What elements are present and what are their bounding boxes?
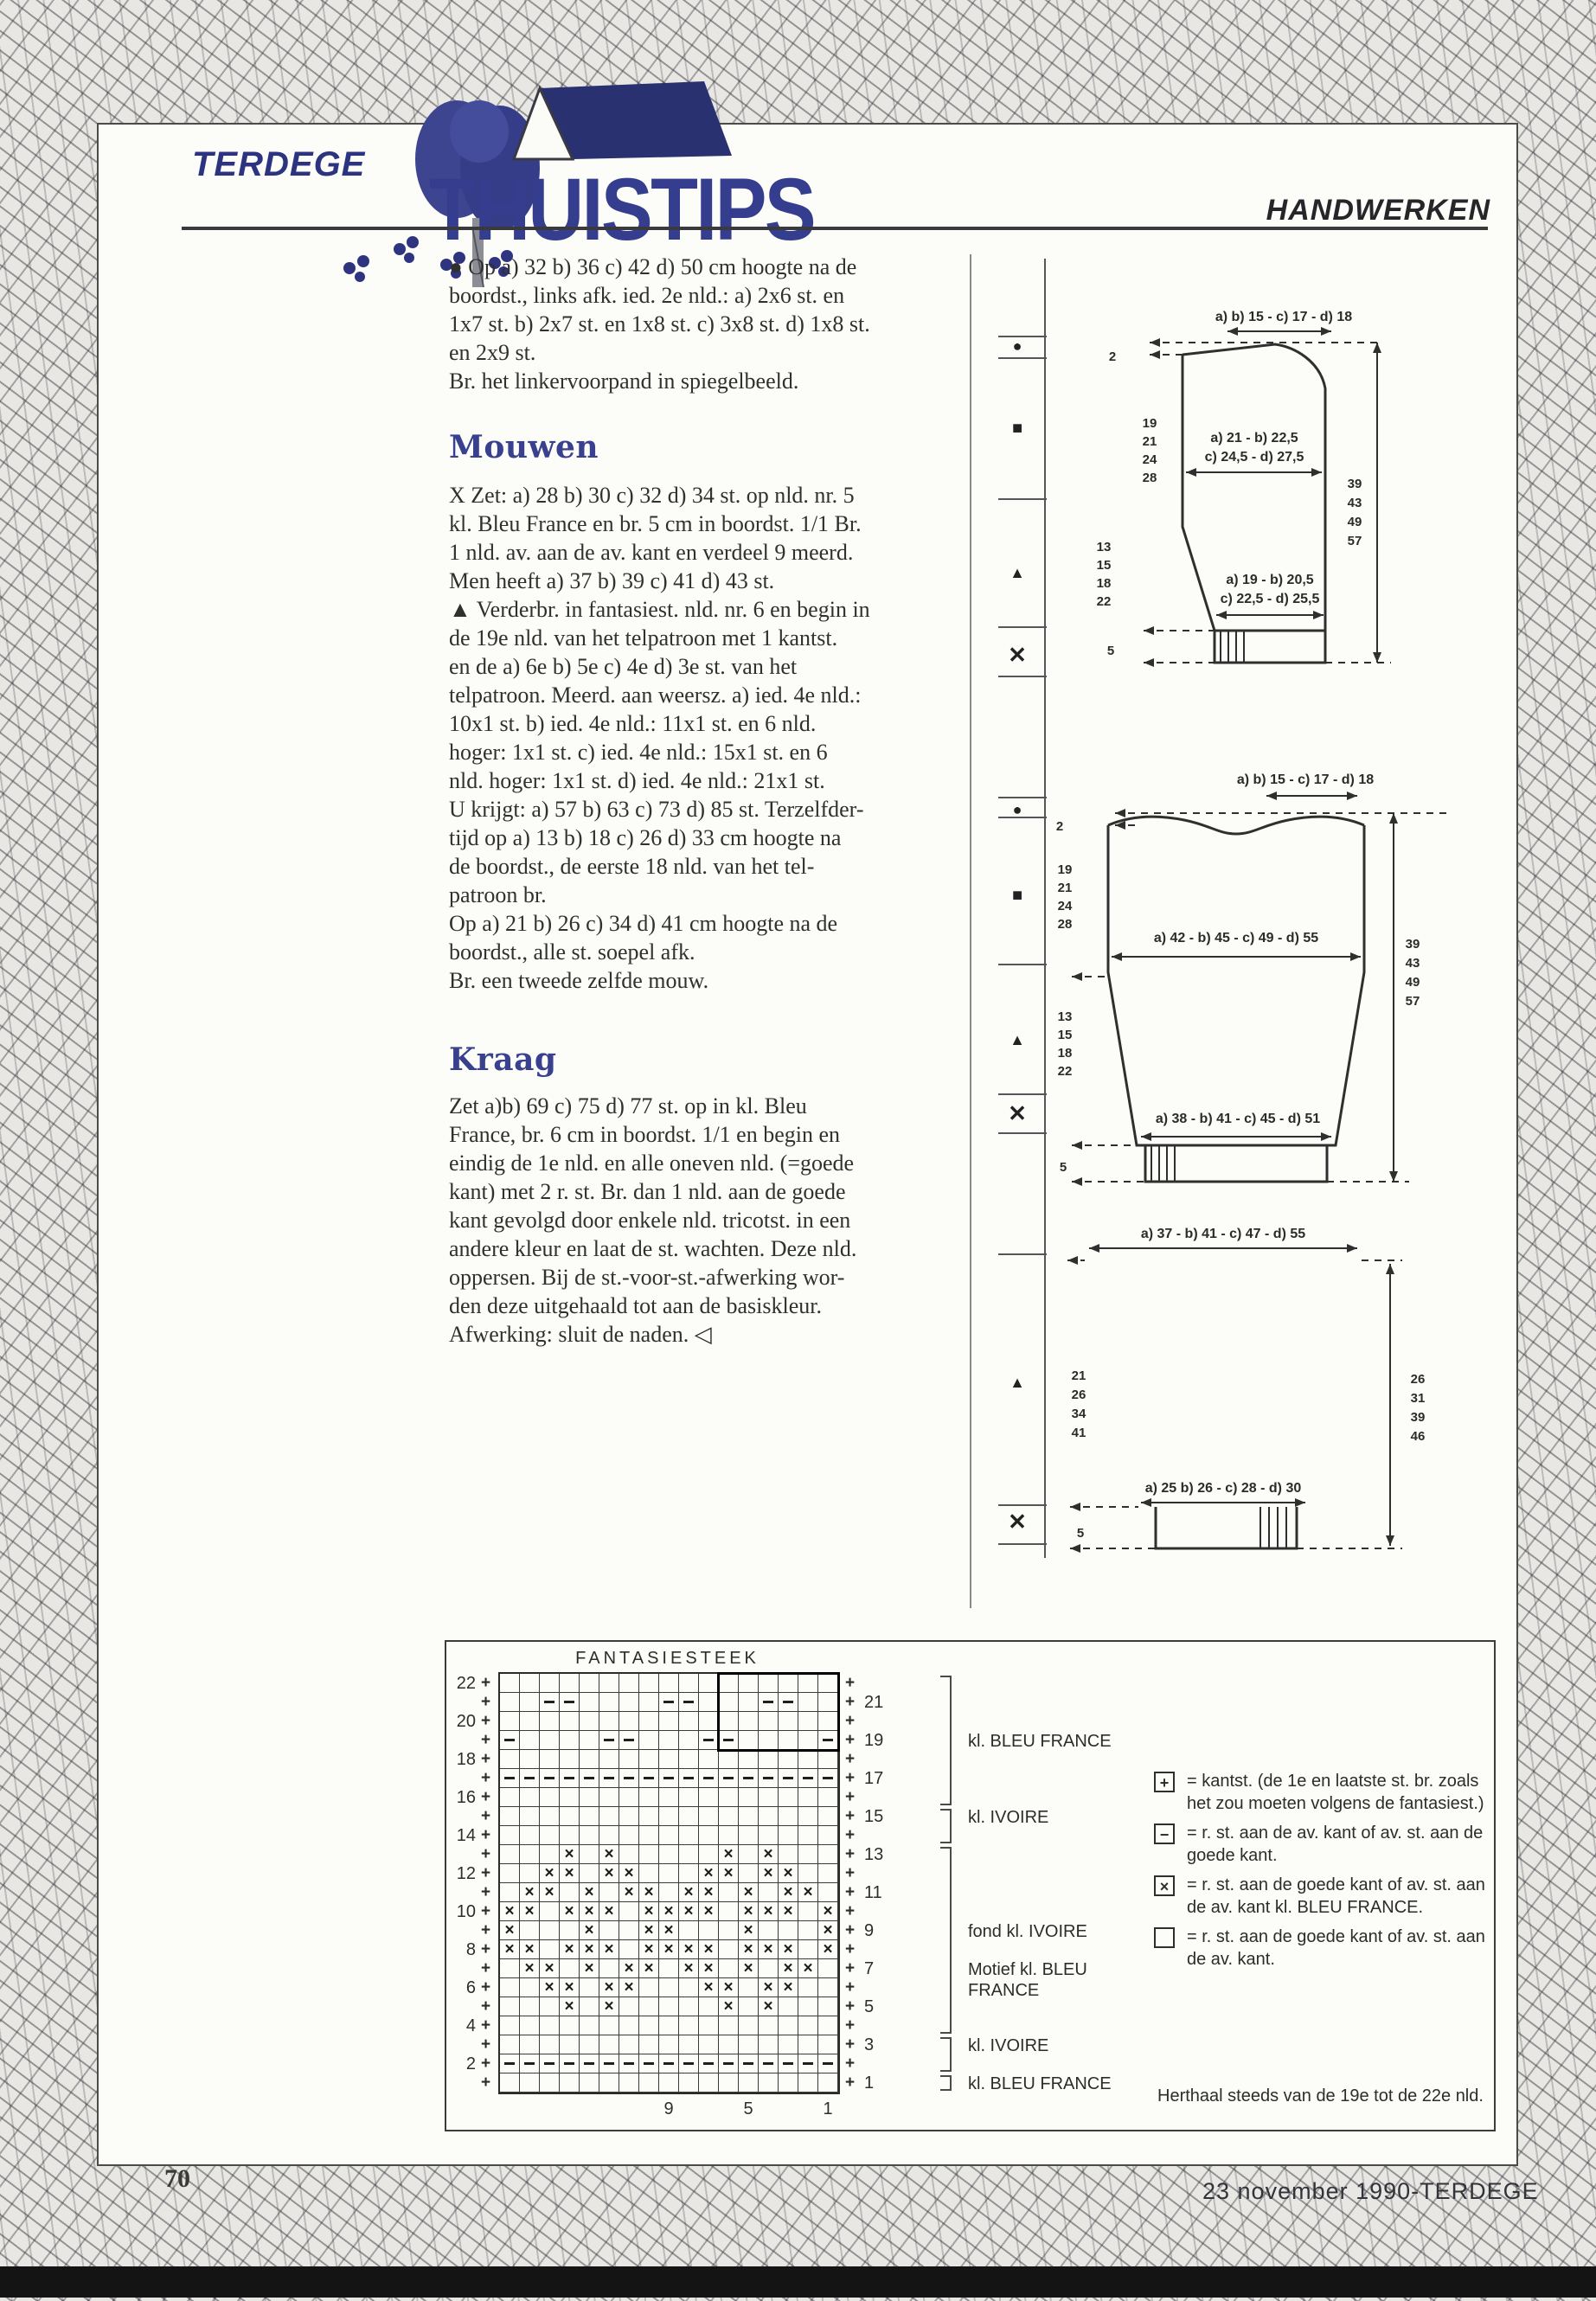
intro-paragraph: ● Op a) 32 b) 36 c) 42 d) 50 cm hoogte n… bbox=[449, 253, 978, 395]
svg-text:46: 46 bbox=[1411, 1429, 1426, 1444]
chart-cell bbox=[759, 1921, 779, 1940]
header-rule bbox=[182, 227, 1488, 230]
chart-cell bbox=[659, 1731, 679, 1750]
svg-text:43: 43 bbox=[1406, 956, 1420, 971]
triangle-icon: ▲ bbox=[1000, 1031, 1035, 1049]
chart-cell bbox=[560, 1731, 580, 1750]
color-label: kl. BLEU FRANCE bbox=[968, 1731, 1112, 1752]
chart-cell bbox=[619, 1826, 639, 1845]
color-range-bracket bbox=[940, 1809, 952, 1843]
svg-text:22: 22 bbox=[1097, 594, 1112, 609]
chart-cell bbox=[679, 1693, 699, 1712]
chart-cell bbox=[659, 1826, 679, 1845]
rib-hatch bbox=[1221, 631, 1244, 663]
triangle-icon: ▲ bbox=[1000, 1374, 1035, 1392]
page-title: THUISTIPS bbox=[429, 159, 814, 260]
chart-cell bbox=[739, 1978, 759, 1997]
body-panel-diagram: a) b) 15 - c) 17 - d) 18 2 19 21 24 28 a… bbox=[1046, 765, 1517, 1223]
chart-cell bbox=[818, 1883, 838, 1902]
chart-cell bbox=[540, 1826, 560, 1845]
chart-cell bbox=[679, 1978, 699, 1997]
chart-cell bbox=[659, 1750, 679, 1769]
chart-cell bbox=[798, 1978, 818, 1997]
chart-cell bbox=[520, 1750, 540, 1769]
chart-cell: × bbox=[599, 1845, 619, 1864]
chart-cell bbox=[540, 1731, 560, 1750]
chart-cell bbox=[580, 1750, 599, 1769]
svg-text:39: 39 bbox=[1348, 477, 1362, 491]
chart-cell bbox=[560, 1826, 580, 1845]
chart-cell: × bbox=[560, 1864, 580, 1883]
chart-cell bbox=[580, 1826, 599, 1845]
chart-cell bbox=[699, 1750, 719, 1769]
stitch-chart-grid: ++22++21++20++19++18++17++16++15++14××××… bbox=[498, 1672, 840, 2094]
chart-cell bbox=[520, 1674, 540, 1693]
svg-text:a) 21 - b) 22,5: a) 21 - b) 22,5 bbox=[1210, 431, 1298, 445]
chart-cell bbox=[580, 2054, 599, 2073]
chart-cell: × bbox=[699, 1883, 719, 1902]
stitch-chart-panel: FANTASIESTEEK ++22++21++20++19++18++17++… bbox=[445, 1640, 1496, 2131]
chart-cell bbox=[679, 1921, 699, 1940]
chart-cell bbox=[520, 2016, 540, 2035]
rib-hatch bbox=[1260, 1507, 1286, 1548]
chart-cell bbox=[659, 1674, 679, 1693]
chart-cell: × bbox=[560, 1978, 580, 1997]
svg-text:2: 2 bbox=[1109, 349, 1116, 364]
chart-cell bbox=[580, 1978, 599, 1997]
dot-icon: ● bbox=[1000, 337, 1035, 356]
chart-cell bbox=[580, 1997, 599, 2016]
chart-cell bbox=[560, 1674, 580, 1693]
svg-text:a) 25 b) 26 - c) 28 - d) 30: a) 25 b) 26 - c) 28 - d) 30 bbox=[1145, 1481, 1302, 1496]
page-number: 70 bbox=[164, 2164, 190, 2194]
chart-cell bbox=[719, 2054, 739, 2073]
chart-cell bbox=[759, 2073, 779, 2093]
chart-cell bbox=[500, 2054, 520, 2073]
chart-cell bbox=[699, 1921, 719, 1940]
svg-text:49: 49 bbox=[1406, 975, 1420, 990]
chart-cell bbox=[500, 2035, 520, 2054]
chart-cell bbox=[818, 2016, 838, 2035]
chart-cell bbox=[659, 1845, 679, 1864]
chart-cell bbox=[699, 1845, 719, 1864]
chart-cell bbox=[599, 1921, 619, 1940]
chart-cell bbox=[500, 1712, 520, 1731]
chart-cell bbox=[639, 1997, 659, 2016]
chart-cell bbox=[560, 1750, 580, 1769]
chart-cell: × bbox=[520, 1940, 540, 1959]
chart-cell bbox=[560, 1959, 580, 1978]
chart-cell bbox=[679, 1674, 699, 1693]
bottom-band bbox=[0, 2266, 1596, 2298]
chart-cell bbox=[540, 1693, 560, 1712]
chart-cell bbox=[540, 1807, 560, 1826]
chart-cell: × bbox=[679, 1902, 699, 1921]
chart-cell bbox=[798, 2016, 818, 2035]
chart-cell bbox=[520, 1693, 540, 1712]
chart-cell bbox=[818, 1826, 838, 1845]
legend-item: −= r. st. aan de av. kant of av. st. aan… bbox=[1154, 1822, 1500, 1867]
repeat-note: Herthaal steeds van de 19e tot de 22e nl… bbox=[1157, 2086, 1484, 2106]
chart-cell bbox=[619, 1902, 639, 1921]
chart-cell bbox=[520, 1921, 540, 1940]
svg-text:34: 34 bbox=[1072, 1407, 1086, 1421]
chart-cell bbox=[540, 1674, 560, 1693]
svg-text:28: 28 bbox=[1143, 471, 1157, 485]
chart-cell bbox=[659, 1978, 679, 1997]
chart-cell bbox=[779, 1750, 798, 1769]
chart-cell: × bbox=[818, 1902, 838, 1921]
chart-cell bbox=[699, 1769, 719, 1788]
chart-cell bbox=[639, 1693, 659, 1712]
chart-cell bbox=[818, 2054, 838, 2073]
chart-cell bbox=[540, 1788, 560, 1807]
chart-cell bbox=[679, 1769, 699, 1788]
chart-cell: × bbox=[759, 1940, 779, 1959]
chart-cell bbox=[739, 1845, 759, 1864]
svg-text:a) b) 15 - c) 17 - d) 18: a) b) 15 - c) 17 - d) 18 bbox=[1215, 310, 1352, 324]
chart-cell bbox=[659, 1712, 679, 1731]
chart-cell bbox=[500, 1731, 520, 1750]
svg-text:c) 24,5 - d) 27,5: c) 24,5 - d) 27,5 bbox=[1205, 450, 1304, 465]
chart-cell: × bbox=[739, 1902, 759, 1921]
svg-text:a) 19 - b) 20,5: a) 19 - b) 20,5 bbox=[1226, 573, 1313, 587]
chart-cell: × bbox=[540, 1883, 560, 1902]
chart-cell: × bbox=[500, 1902, 520, 1921]
chart-cell bbox=[798, 1769, 818, 1788]
chart-cell bbox=[560, 2016, 580, 2035]
chart-cell: × bbox=[779, 1883, 798, 1902]
chart-cell: × bbox=[639, 1902, 659, 1921]
chart-cell bbox=[619, 1674, 639, 1693]
chart-cell bbox=[639, 1674, 659, 1693]
chart-cell bbox=[759, 2054, 779, 2073]
chart-cell: × bbox=[739, 1940, 759, 1959]
chart-cell bbox=[599, 2035, 619, 2054]
dash-symbol-icon: − bbox=[1154, 1823, 1175, 1844]
chart-cell: × bbox=[739, 1921, 759, 1940]
chart-cell bbox=[619, 1807, 639, 1826]
chart-cell bbox=[779, 1807, 798, 1826]
chart-cell bbox=[679, 2054, 699, 2073]
chart-cell: × bbox=[599, 1997, 619, 2016]
x-icon: ✕ bbox=[1000, 642, 1035, 669]
chart-cell: × bbox=[639, 1940, 659, 1959]
chart-cell: × bbox=[580, 1959, 599, 1978]
chart-cell bbox=[818, 1807, 838, 1826]
svg-text:5: 5 bbox=[1060, 1160, 1067, 1175]
chart-cell bbox=[659, 1883, 679, 1902]
chart-cell bbox=[639, 1807, 659, 1826]
chart-cell bbox=[500, 1978, 520, 1997]
chart-cell bbox=[500, 1864, 520, 1883]
chart-cell bbox=[719, 1959, 739, 1978]
chart-cell bbox=[639, 1750, 659, 1769]
svg-text:5: 5 bbox=[1107, 644, 1114, 658]
chart-cell: × bbox=[560, 1997, 580, 2016]
chart-cell bbox=[818, 2073, 838, 2093]
chart-cell bbox=[818, 1864, 838, 1883]
chart-cell bbox=[560, 1921, 580, 1940]
svg-text:26: 26 bbox=[1072, 1388, 1086, 1402]
svg-text:22: 22 bbox=[1058, 1064, 1073, 1079]
chart-cell bbox=[679, 1750, 699, 1769]
chart-cell bbox=[779, 2016, 798, 2035]
chart-cell: × bbox=[599, 1864, 619, 1883]
rib-hatch bbox=[1151, 1145, 1175, 1182]
chart-cell bbox=[818, 1750, 838, 1769]
color-label: kl. IVOIRE bbox=[968, 1807, 1048, 1828]
chart-cell bbox=[719, 2016, 739, 2035]
chart-cell: × bbox=[699, 1864, 719, 1883]
chart-cell bbox=[639, 1826, 659, 1845]
chart-cell bbox=[719, 1788, 739, 1807]
chart-cell: × bbox=[779, 1864, 798, 1883]
chart-cell: × bbox=[520, 1959, 540, 1978]
chart-cell bbox=[619, 1845, 639, 1864]
chart-cell bbox=[798, 2073, 818, 2093]
legend-item: ×= r. st. aan de goede kant of av. st. a… bbox=[1154, 1874, 1500, 1919]
chart-cell bbox=[580, 2035, 599, 2054]
chart-cell bbox=[818, 2035, 838, 2054]
chart-cell bbox=[699, 1712, 719, 1731]
chart-cell bbox=[500, 1788, 520, 1807]
chart-cell bbox=[580, 1845, 599, 1864]
chart-cell: × bbox=[779, 1978, 798, 1997]
chart-cell bbox=[619, 2035, 639, 2054]
chart-cell: × bbox=[719, 1864, 739, 1883]
chart-cell bbox=[560, 1788, 580, 1807]
triangle-icon: ▲ bbox=[1000, 564, 1035, 582]
chart-cell: × bbox=[619, 1864, 639, 1883]
chart-cell bbox=[798, 1750, 818, 1769]
chart-cell bbox=[599, 1674, 619, 1693]
chart-cell bbox=[659, 1788, 679, 1807]
chart-cell bbox=[520, 1826, 540, 1845]
chart-cell bbox=[679, 1788, 699, 1807]
svg-text:43: 43 bbox=[1348, 496, 1362, 510]
chart-cell bbox=[798, 1826, 818, 1845]
chart-cell: × bbox=[739, 1959, 759, 1978]
chart-cell bbox=[500, 1769, 520, 1788]
chart-cell: × bbox=[798, 1959, 818, 1978]
chart-cell bbox=[520, 2054, 540, 2073]
chart-cell bbox=[699, 1693, 719, 1712]
chart-cell bbox=[599, 2016, 619, 2035]
chart-cell bbox=[599, 1959, 619, 1978]
chart-cell bbox=[619, 1693, 639, 1712]
square-icon: ■ bbox=[1000, 419, 1035, 439]
svg-text:31: 31 bbox=[1411, 1391, 1426, 1406]
chart-cell: × bbox=[759, 1997, 779, 2016]
house-icon bbox=[514, 81, 732, 159]
chart-cell bbox=[619, 1921, 639, 1940]
chart-cell: × bbox=[659, 1921, 679, 1940]
svg-text:a) 38 - b) 41 - c) 45 - d) 51: a) 38 - b) 41 - c) 45 - d) 51 bbox=[1156, 1112, 1320, 1126]
color-label: Motief kl. BLEUFRANCE bbox=[968, 1959, 1087, 2001]
chart-cell: × bbox=[619, 1883, 639, 1902]
chart-cell: × bbox=[779, 1940, 798, 1959]
svg-text:19: 19 bbox=[1143, 416, 1157, 431]
chart-cell bbox=[739, 2054, 759, 2073]
color-range-bracket bbox=[940, 1847, 952, 2034]
chart-title: FANTASIESTEEK bbox=[498, 1649, 836, 1669]
chart-cell bbox=[639, 1864, 659, 1883]
chart-cell bbox=[599, 1750, 619, 1769]
chart-cell bbox=[739, 1807, 759, 1826]
chart-cell bbox=[679, 1712, 699, 1731]
heading-mouwen: Mouwen bbox=[449, 429, 978, 465]
chart-cell bbox=[520, 1712, 540, 1731]
chart-cell bbox=[679, 1864, 699, 1883]
chart-cell bbox=[599, 1883, 619, 1902]
chart-cell bbox=[639, 2016, 659, 2035]
chart-cell bbox=[580, 1864, 599, 1883]
chart-cell bbox=[798, 1864, 818, 1883]
chart-cell bbox=[580, 1693, 599, 1712]
chart-cell bbox=[500, 1750, 520, 1769]
chart-cell: × bbox=[639, 1883, 659, 1902]
chart-cell bbox=[540, 1845, 560, 1864]
chart-cell bbox=[599, 1712, 619, 1731]
chart-cell bbox=[659, 2054, 679, 2073]
chart-cell: × bbox=[639, 1959, 659, 1978]
chart-cell: × bbox=[759, 1978, 779, 1997]
chart-cell bbox=[759, 1826, 779, 1845]
svg-text:18: 18 bbox=[1097, 576, 1112, 591]
chart-cell bbox=[739, 1750, 759, 1769]
chart-cell: × bbox=[619, 1959, 639, 1978]
chart-cell bbox=[560, 2035, 580, 2054]
chart-cell: × bbox=[719, 1997, 739, 2016]
chart-cell bbox=[599, 1693, 619, 1712]
chart-cell: × bbox=[719, 1845, 739, 1864]
svg-text:c) 22,5 - d) 25,5: c) 22,5 - d) 25,5 bbox=[1221, 592, 1320, 606]
chart-cell: × bbox=[818, 1921, 838, 1940]
chart-cell: × bbox=[779, 1902, 798, 1921]
chart-cell bbox=[500, 1674, 520, 1693]
color-range-bracket bbox=[940, 1676, 952, 1805]
chart-cell bbox=[520, 1807, 540, 1826]
chart-cell bbox=[560, 1883, 580, 1902]
chart-cell bbox=[818, 1997, 838, 2016]
chart-cell bbox=[779, 1921, 798, 1940]
chart-cell: × bbox=[580, 1940, 599, 1959]
chart-cell bbox=[520, 2035, 540, 2054]
chart-cell bbox=[659, 1693, 679, 1712]
chart-cell: × bbox=[679, 1959, 699, 1978]
chart-cell bbox=[779, 2035, 798, 2054]
chart-cell bbox=[639, 2054, 659, 2073]
chart-cell: × bbox=[580, 1883, 599, 1902]
x-icon: ✕ bbox=[1000, 1509, 1035, 1535]
color-label: kl. IVOIRE bbox=[968, 2035, 1048, 2056]
chart-cell bbox=[560, 2054, 580, 2073]
chart-cell bbox=[639, 1712, 659, 1731]
chart-cell bbox=[639, 1731, 659, 1750]
chart-cell bbox=[639, 1978, 659, 1997]
chart-cell bbox=[619, 1769, 639, 1788]
chart-cell bbox=[520, 2073, 540, 2093]
chart-cell bbox=[540, 2073, 560, 2093]
chart-cell bbox=[699, 1731, 719, 1750]
chart-cell: × bbox=[619, 1978, 639, 1997]
chart-cell bbox=[798, 1902, 818, 1921]
chart-cell: × bbox=[699, 1902, 719, 1921]
chart-cell: × bbox=[500, 1940, 520, 1959]
svg-text:24: 24 bbox=[1058, 899, 1073, 913]
chart-cell bbox=[580, 1731, 599, 1750]
chart-cell bbox=[619, 2054, 639, 2073]
chart-cell: × bbox=[580, 1921, 599, 1940]
chart-cell: × bbox=[560, 1845, 580, 1864]
color-range-bracket bbox=[940, 2037, 952, 2072]
svg-text:39: 39 bbox=[1411, 1410, 1426, 1425]
chart-cell bbox=[540, 2054, 560, 2073]
chart-cell bbox=[719, 1921, 739, 1940]
chart-cell: × bbox=[779, 1959, 798, 1978]
chart-cell bbox=[699, 1826, 719, 1845]
chart-cell bbox=[500, 2073, 520, 2093]
chart-cell bbox=[619, 2073, 639, 2093]
chart-cell bbox=[798, 1997, 818, 2016]
chart-cell bbox=[679, 1826, 699, 1845]
chart-cell bbox=[699, 1997, 719, 2016]
chart-cell bbox=[599, 1807, 619, 1826]
square-icon: ■ bbox=[1000, 886, 1035, 906]
chart-cell bbox=[699, 1674, 719, 1693]
chart-cell bbox=[779, 1769, 798, 1788]
chart-cell bbox=[580, 1788, 599, 1807]
svg-text:26: 26 bbox=[1411, 1372, 1426, 1387]
chart-cell bbox=[520, 1997, 540, 2016]
chart-cell bbox=[679, 2073, 699, 2093]
chart-cell bbox=[759, 1807, 779, 1826]
chart-cell bbox=[818, 1769, 838, 1788]
chart-cell bbox=[699, 1788, 719, 1807]
chart-cell bbox=[500, 1845, 520, 1864]
chart-cell bbox=[719, 2035, 739, 2054]
chart-cell bbox=[759, 2035, 779, 2054]
chart-cell bbox=[560, 1693, 580, 1712]
svg-text:24: 24 bbox=[1143, 452, 1157, 467]
chart-cell bbox=[739, 2016, 759, 2035]
chart-cell bbox=[779, 1788, 798, 1807]
svg-text:28: 28 bbox=[1058, 917, 1073, 932]
x-symbol-icon: × bbox=[1154, 1875, 1175, 1896]
chart-cell bbox=[759, 1788, 779, 1807]
chart-cell: × bbox=[599, 1978, 619, 1997]
chart-cell bbox=[619, 1731, 639, 1750]
chart-cell: × bbox=[679, 1883, 699, 1902]
chart-cell bbox=[560, 1807, 580, 1826]
svg-text:57: 57 bbox=[1348, 534, 1362, 548]
chart-cell bbox=[798, 1921, 818, 1940]
chart-cell: × bbox=[580, 1902, 599, 1921]
chart-cell bbox=[639, 1845, 659, 1864]
chart-cell bbox=[500, 1826, 520, 1845]
chart-cell bbox=[540, 1712, 560, 1731]
chart-cell bbox=[540, 2016, 560, 2035]
chart-cell bbox=[520, 1978, 540, 1997]
chart-cell bbox=[659, 2073, 679, 2093]
chart-cell bbox=[619, 1997, 639, 2016]
chart-cell bbox=[699, 2073, 719, 2093]
chart-cell bbox=[659, 2016, 679, 2035]
chart-cell bbox=[779, 1826, 798, 1845]
chart-cell bbox=[659, 1807, 679, 1826]
section-label: HANDWERKEN bbox=[1266, 194, 1490, 228]
